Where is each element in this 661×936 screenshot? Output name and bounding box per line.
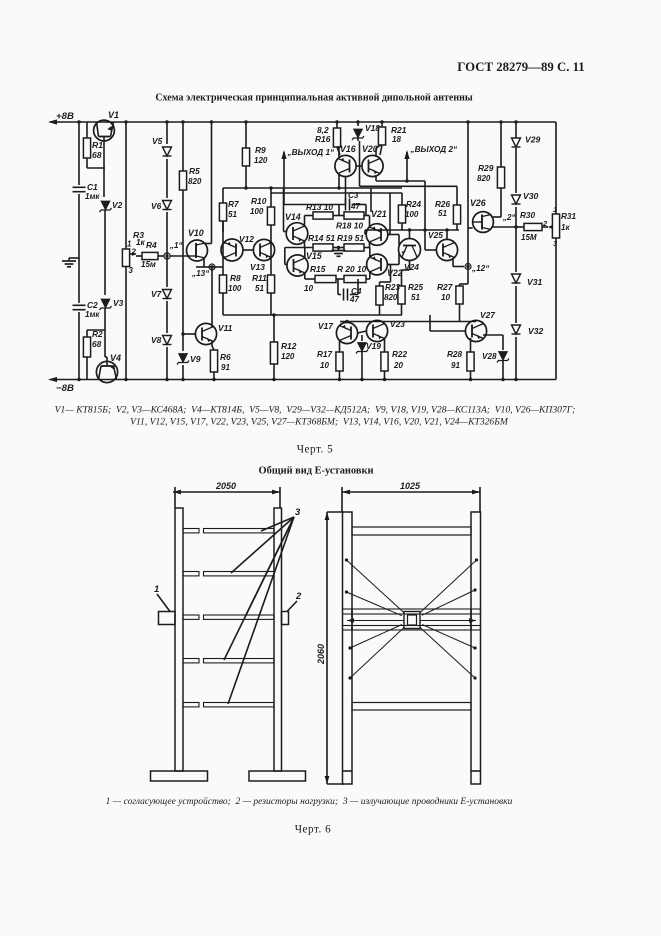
svg-text:R4: R4 — [146, 240, 157, 250]
svg-text:3: 3 — [295, 506, 301, 517]
svg-text:ГОСТ 28279—89 С. 11: ГОСТ 28279—89 С. 11 — [457, 60, 584, 74]
svg-text:V11: V11 — [218, 323, 233, 333]
svg-text:„2“: „2“ — [502, 213, 515, 222]
svg-text:V27: V27 — [480, 310, 495, 320]
svg-text:120: 120 — [281, 352, 295, 361]
svg-text:2050: 2050 — [215, 481, 236, 491]
svg-text:„ВЫХОД 1“: „ВЫХОД 1“ — [287, 148, 336, 157]
svg-text:V16: V16 — [340, 144, 356, 154]
svg-text:V29: V29 — [525, 135, 541, 145]
svg-text:„12“: „12“ — [471, 264, 490, 273]
svg-text:R5: R5 — [189, 166, 200, 176]
svg-text:V8: V8 — [151, 335, 162, 345]
svg-text:R26: R26 — [435, 200, 450, 209]
svg-text:R17: R17 — [317, 350, 332, 359]
svg-text:2060: 2060 — [316, 644, 326, 665]
svg-text:V3: V3 — [113, 298, 124, 308]
svg-text:R15: R15 — [310, 264, 326, 274]
svg-text:„1“: „1“ — [169, 241, 182, 250]
svg-text:47: 47 — [350, 202, 360, 211]
svg-text:V25: V25 — [428, 230, 443, 240]
svg-text:R25: R25 — [408, 283, 423, 292]
svg-text:R1: R1 — [92, 140, 103, 150]
svg-text:V12: V12 — [239, 234, 254, 244]
svg-text:R10: R10 — [251, 196, 267, 206]
svg-text:V10: V10 — [188, 228, 204, 238]
svg-text:51: 51 — [228, 210, 237, 219]
svg-text:R9: R9 — [255, 145, 266, 155]
svg-text:R19 51: R19 51 — [337, 233, 364, 243]
svg-text:R12: R12 — [281, 341, 297, 351]
svg-text:R30: R30 — [520, 211, 535, 220]
svg-text:V1— КТ815Б; V2, V3—КС468А; V: V1— КТ815Б; V2, V3—КС468А; V4—КТ814Б, V5… — [55, 405, 576, 416]
svg-text:R2: R2 — [92, 329, 103, 339]
svg-text:100: 100 — [250, 207, 264, 216]
svg-text:R13 10: R13 10 — [306, 202, 333, 212]
svg-text:V5: V5 — [152, 136, 163, 146]
svg-text:R29: R29 — [478, 163, 494, 173]
svg-text:R27: R27 — [437, 282, 453, 292]
svg-text:V26: V26 — [470, 198, 486, 208]
svg-text:V32: V32 — [528, 326, 544, 336]
svg-text:С3: С3 — [348, 191, 359, 200]
svg-text:10: 10 — [441, 293, 451, 302]
svg-text:V30: V30 — [523, 191, 539, 201]
svg-text:820: 820 — [188, 177, 202, 186]
svg-text:91: 91 — [451, 361, 460, 370]
svg-text:10: 10 — [304, 284, 314, 293]
svg-text:100: 100 — [405, 210, 419, 219]
svg-text:Схема электрическая принципиал: Схема электрическая принципиальная актив… — [155, 93, 473, 104]
svg-text:15м: 15м — [141, 260, 156, 269]
svg-text:1 — согласующее устройство; 2: 1 — согласующее устройство; 2 — резистор… — [106, 796, 513, 807]
svg-text:V21: V21 — [371, 209, 387, 219]
svg-text:R31: R31 — [561, 212, 576, 221]
svg-text:1мк: 1мк — [85, 310, 100, 319]
svg-text:1мк: 1мк — [85, 192, 100, 201]
svg-text:R28: R28 — [447, 350, 462, 359]
svg-text:3: 3 — [129, 266, 134, 275]
svg-text:R22: R22 — [392, 350, 407, 359]
svg-text:R21: R21 — [391, 125, 407, 135]
svg-text:68: 68 — [92, 339, 102, 349]
svg-text:18: 18 — [392, 135, 401, 144]
svg-text:„ВЫХОД 2“: „ВЫХОД 2“ — [410, 145, 459, 154]
svg-text:R 20 10: R 20 10 — [337, 264, 367, 274]
svg-text:47: 47 — [349, 295, 359, 304]
svg-text:Черт. 6: Черт. 6 — [295, 824, 331, 836]
svg-text:V15: V15 — [306, 251, 322, 261]
svg-text:820: 820 — [477, 174, 491, 183]
svg-text:1025: 1025 — [400, 481, 421, 491]
svg-text:С1: С1 — [87, 182, 98, 192]
svg-text:V13: V13 — [250, 262, 265, 272]
svg-text:R18 10: R18 10 — [336, 221, 363, 231]
svg-text:20: 20 — [393, 361, 403, 370]
svg-text:„13“: „13“ — [191, 269, 210, 278]
svg-text:V4: V4 — [110, 353, 121, 363]
svg-text:V6: V6 — [151, 201, 162, 211]
svg-text:51: 51 — [438, 209, 447, 218]
svg-text:91: 91 — [221, 363, 230, 372]
svg-text:2: 2 — [131, 248, 137, 257]
svg-text:1: 1 — [154, 583, 159, 594]
svg-text:R7: R7 — [228, 199, 239, 209]
svg-text:V31: V31 — [527, 277, 543, 287]
svg-text:100: 100 — [228, 284, 242, 293]
svg-text:68: 68 — [92, 150, 102, 160]
svg-text:2: 2 — [542, 219, 548, 228]
svg-text:V17: V17 — [318, 321, 333, 331]
svg-text:V11, V12, V15, V17, V22, V23,: V11, V12, V15, V17, V22, V23, V25, V27—К… — [130, 417, 509, 428]
svg-text:Черт. 5: Черт. 5 — [297, 444, 333, 456]
svg-text:V28: V28 — [482, 352, 497, 361]
svg-text:10: 10 — [320, 361, 329, 370]
svg-text:V1: V1 — [108, 110, 119, 120]
svg-text:2: 2 — [295, 590, 302, 601]
svg-text:R24: R24 — [406, 200, 421, 209]
svg-text:R16: R16 — [315, 134, 331, 144]
svg-text:1к: 1к — [561, 223, 570, 232]
svg-text:−8В: −8В — [56, 383, 74, 394]
svg-text:15М: 15М — [521, 233, 537, 242]
svg-text:V7: V7 — [151, 289, 162, 299]
svg-text:1к: 1к — [136, 238, 146, 247]
svg-text:120: 120 — [254, 156, 268, 165]
svg-text:V14: V14 — [285, 212, 301, 222]
svg-text:V22: V22 — [387, 268, 403, 278]
svg-text:51: 51 — [411, 293, 420, 302]
svg-text:R11: R11 — [252, 273, 267, 283]
svg-text:V19: V19 — [366, 341, 381, 351]
svg-text:V2: V2 — [112, 200, 123, 210]
svg-text:51: 51 — [255, 284, 264, 293]
svg-text:820: 820 — [384, 293, 398, 302]
svg-text:R8: R8 — [230, 273, 241, 283]
svg-text:+8В: +8В — [56, 111, 74, 122]
svg-text:V23: V23 — [390, 319, 405, 329]
svg-text:С2: С2 — [87, 300, 98, 310]
svg-text:R14 51: R14 51 — [308, 233, 335, 243]
svg-text:V9: V9 — [190, 354, 201, 364]
svg-text:R6: R6 — [220, 352, 231, 362]
svg-text:Общий вид Е-установки: Общий вид Е-установки — [259, 466, 374, 477]
